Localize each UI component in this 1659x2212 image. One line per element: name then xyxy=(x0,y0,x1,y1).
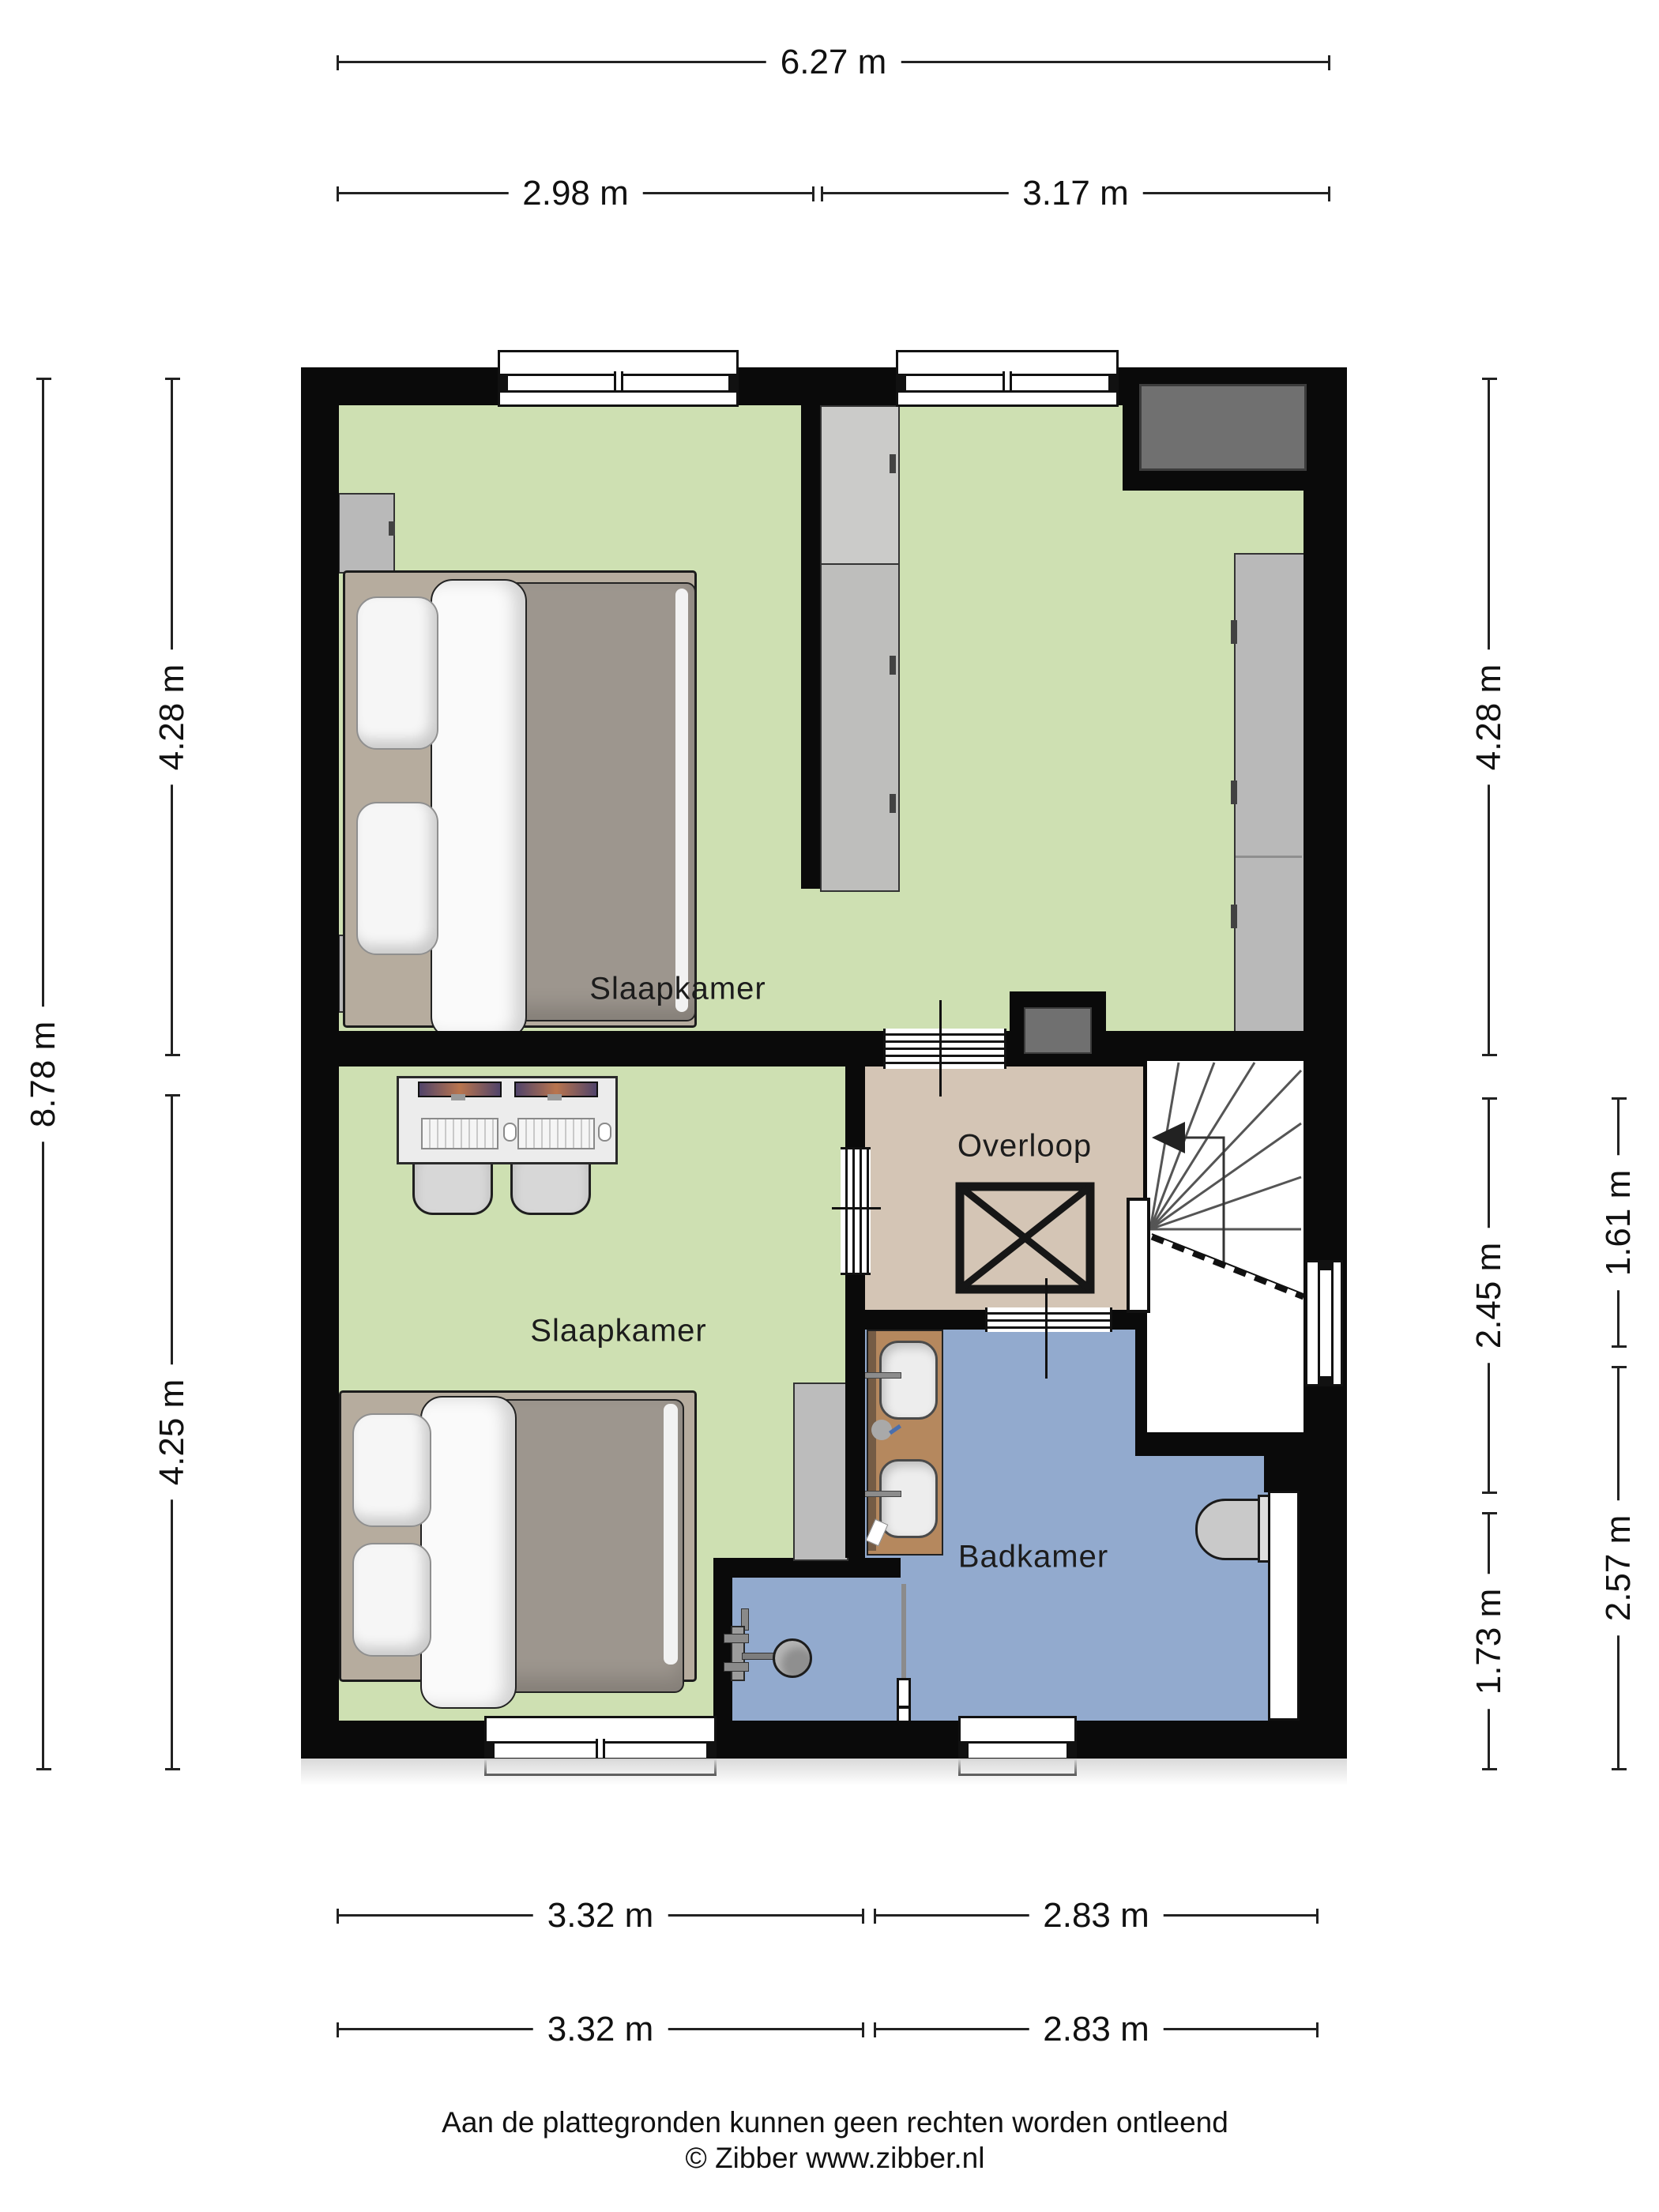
dim-top-total: 6.27 m xyxy=(337,61,1330,63)
desk xyxy=(397,1076,618,1164)
shower-glass-handle xyxy=(897,1678,911,1708)
dim-top-right: 3.17 m xyxy=(822,192,1330,194)
duct-topright xyxy=(1139,384,1307,471)
window-right-stairs xyxy=(1305,1260,1343,1386)
dim-bottom1-right: 2.83 m xyxy=(875,1914,1318,1917)
pillow xyxy=(352,1543,431,1657)
void-x-symbol xyxy=(952,1179,1098,1297)
sheet xyxy=(420,1396,517,1709)
footer-disclaimer: Aan de plattegronden kunnen geen rechten… xyxy=(442,2106,1228,2139)
bed-top-bedroom xyxy=(343,570,697,1028)
wall-landing-left xyxy=(845,1066,865,1558)
stairs xyxy=(1126,1051,1315,1477)
keyboard xyxy=(421,1118,498,1149)
dim-left-upper: 4.28 m xyxy=(171,378,173,1055)
sink xyxy=(879,1341,938,1420)
dim-left-total: 8.78 m xyxy=(42,378,44,1770)
wardrobe-middle-handle xyxy=(890,454,896,473)
label-bedroom-bottom: Slaapkamer xyxy=(530,1314,706,1349)
label-landing: Overloop xyxy=(957,1129,1092,1164)
soap-dish xyxy=(871,1420,892,1440)
wardrobe-middle-handle xyxy=(890,794,896,813)
pillow xyxy=(356,802,438,955)
door-bathroom-tick xyxy=(1045,1278,1048,1379)
dim-right-inner-upper: 4.28 m xyxy=(1488,378,1490,1055)
wardrobe-middle-upper xyxy=(820,405,900,568)
floor-shower xyxy=(732,1578,901,1721)
floorplan-canvas: Slaapkamer Slaapkamer Overloop Badkamer … xyxy=(0,0,1659,2212)
window-glazing xyxy=(1318,1270,1334,1376)
door-top-bedroom xyxy=(883,1029,1006,1069)
wardrobe-right-handle xyxy=(1231,905,1237,928)
monitor-stand xyxy=(547,1094,562,1100)
shower-head-icon xyxy=(773,1638,812,1678)
building-shadow xyxy=(301,1759,1347,1785)
dim-bottom1-left: 3.32 m xyxy=(337,1914,863,1917)
door-top-bedroom-tick xyxy=(939,1000,942,1097)
bed-bottom-bedroom xyxy=(339,1390,697,1682)
mattress-strip xyxy=(664,1404,678,1665)
window-top-left xyxy=(498,350,739,407)
wardrobe-middle-handle xyxy=(890,656,896,675)
nightstand-top xyxy=(338,493,395,574)
dim-right-inner-mid: 2.45 m xyxy=(1488,1098,1490,1493)
dim-right-outer-lower: 2.57 m xyxy=(1617,1367,1619,1770)
faucet-icon xyxy=(862,1372,901,1379)
shaft-duct xyxy=(1024,1007,1092,1054)
sink xyxy=(879,1459,938,1538)
label-bedroom-top: Slaapkamer xyxy=(589,972,766,1007)
faucet-icon xyxy=(862,1491,901,1497)
nightstand-top-handle xyxy=(389,521,395,536)
shower-knob xyxy=(724,1662,749,1672)
wardrobe-middle-lower xyxy=(820,563,900,892)
window-top-right xyxy=(896,350,1119,407)
shower-knob xyxy=(724,1634,749,1643)
mattress-strip xyxy=(675,589,688,1012)
dim-right-inner-lower: 1.73 m xyxy=(1488,1513,1490,1770)
pillow xyxy=(356,596,438,750)
door-bathroom xyxy=(985,1307,1112,1332)
door-bottom-bedroom-tick xyxy=(832,1207,881,1209)
wardrobe-right xyxy=(1234,553,1307,1036)
footer-credit: © Zibber www.zibber.nl xyxy=(686,2142,985,2175)
sheet xyxy=(431,579,527,1039)
wall-outer-left xyxy=(301,367,339,1759)
stair-lower-flight xyxy=(1268,1491,1300,1721)
window-mullion xyxy=(614,371,623,390)
mouse xyxy=(503,1123,517,1142)
dim-bottom2-right: 2.83 m xyxy=(875,2028,1318,2030)
wall-top-partition xyxy=(801,367,820,889)
mouse xyxy=(598,1123,611,1142)
wardrobe-right-handle xyxy=(1231,781,1237,804)
wardrobe-right-handle xyxy=(1231,620,1237,644)
dresser xyxy=(793,1382,848,1561)
wall-outer-bottom xyxy=(301,1721,1347,1759)
dim-left-lower: 4.25 m xyxy=(171,1095,173,1770)
wardrobe-right-divider xyxy=(1236,856,1302,858)
dim-top-left: 2.98 m xyxy=(337,192,814,194)
vanity xyxy=(867,1330,943,1556)
dim-right-outer-upper: 1.61 m xyxy=(1617,1098,1619,1347)
window-mullion xyxy=(1003,371,1012,390)
monitor-stand xyxy=(451,1094,465,1100)
pillow xyxy=(352,1413,431,1527)
door-bottom-bedroom xyxy=(841,1147,871,1275)
keyboard xyxy=(517,1118,595,1149)
window-glazing xyxy=(969,1741,1066,1760)
label-bathroom: Badkamer xyxy=(958,1540,1108,1575)
window-mullion xyxy=(596,1739,605,1758)
vanity-edge xyxy=(868,1331,876,1551)
dim-bottom2-left: 3.32 m xyxy=(337,2028,863,2030)
